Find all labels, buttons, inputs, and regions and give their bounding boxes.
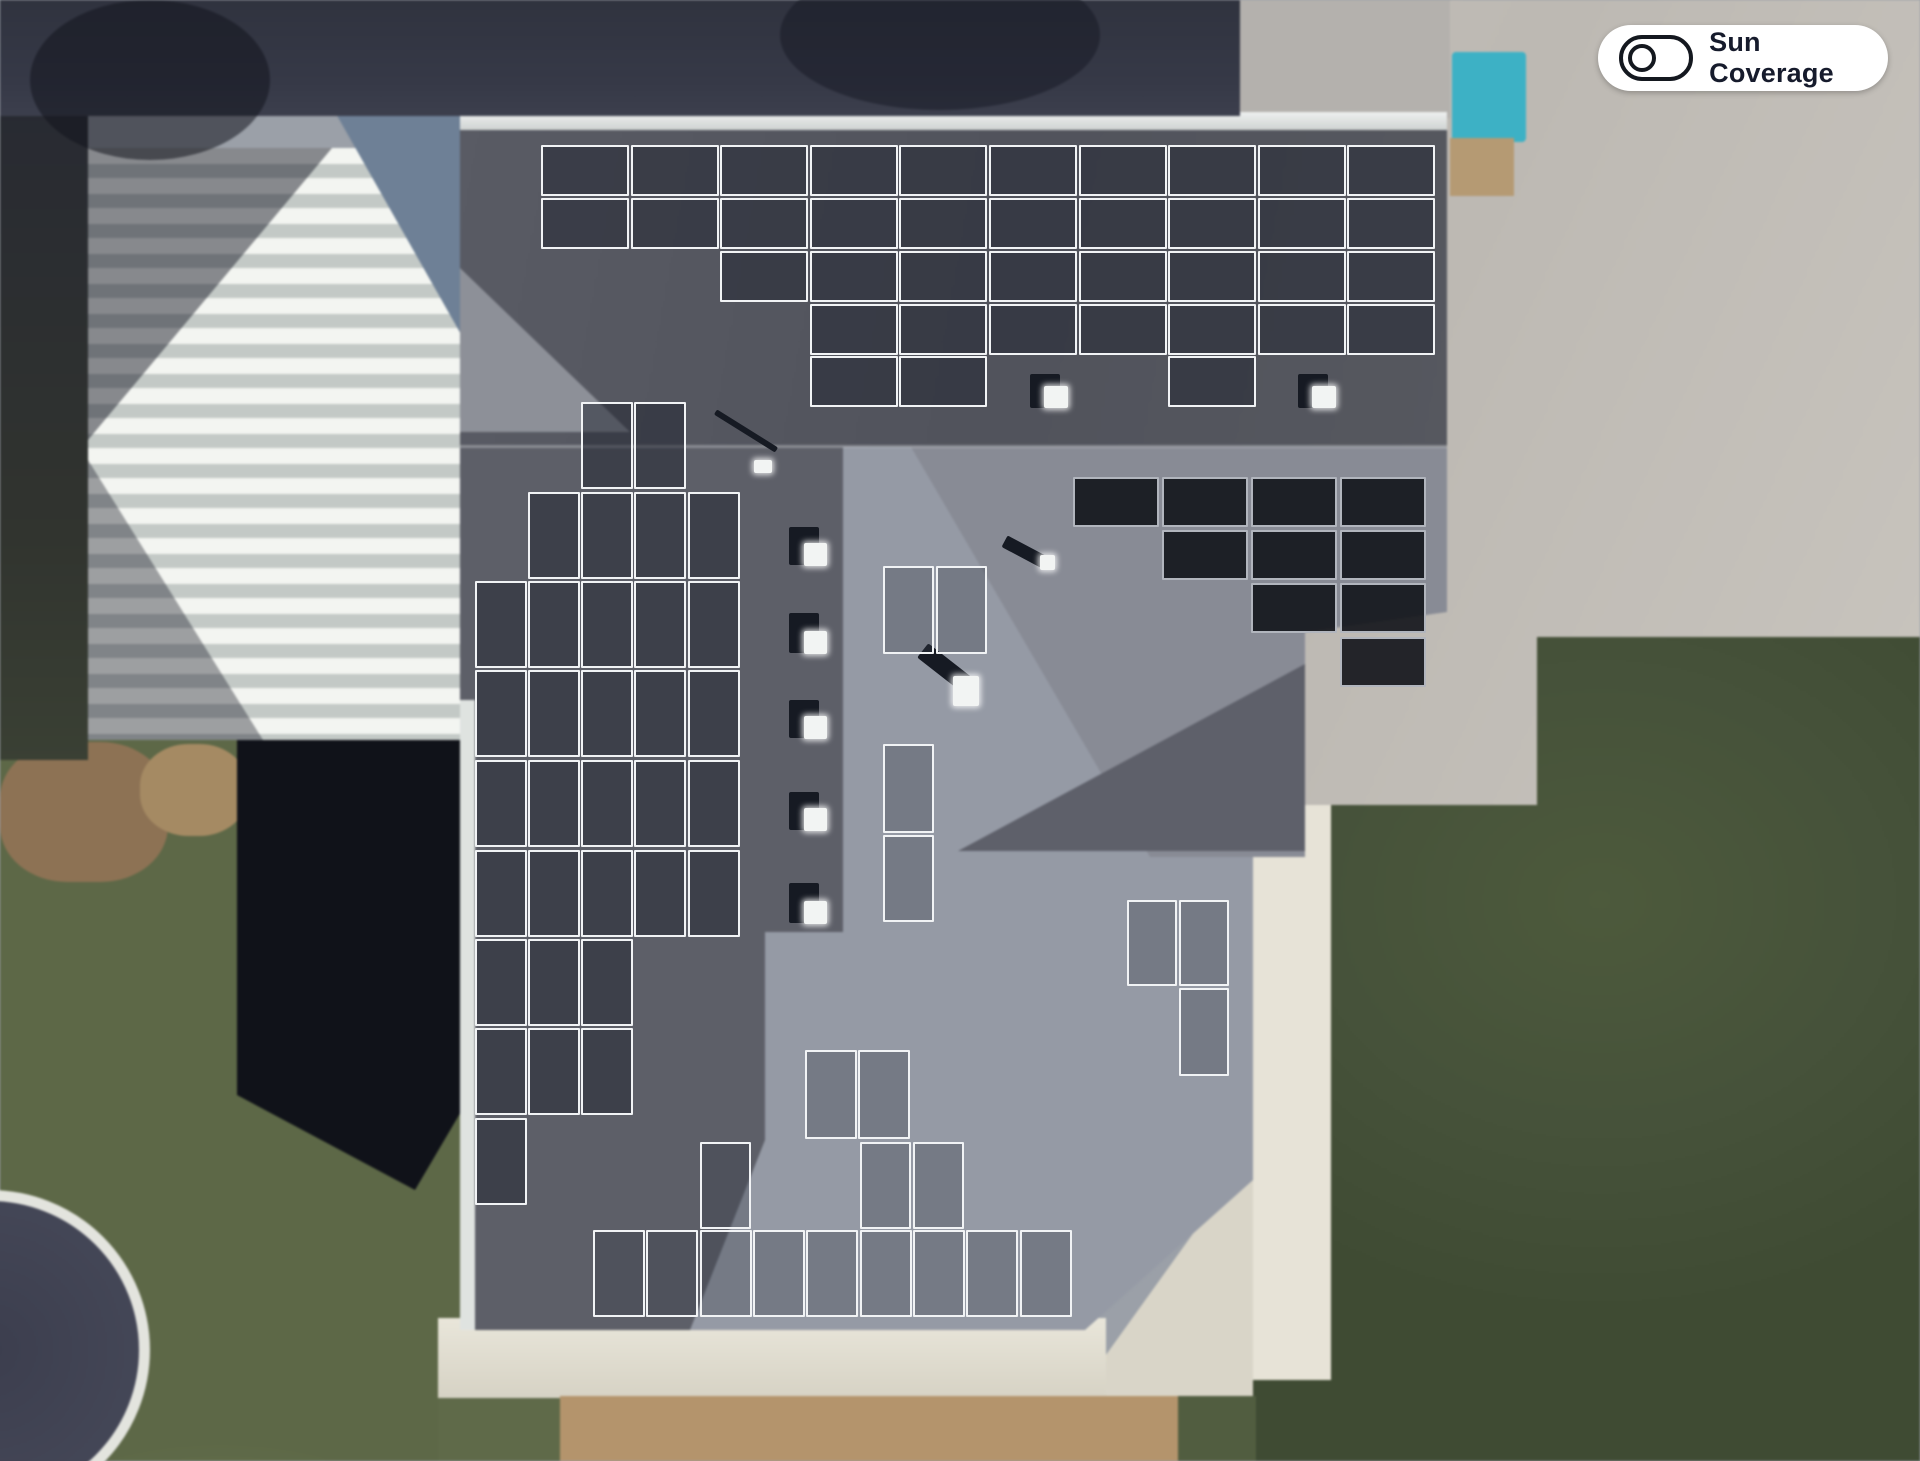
solar-panel[interactable] [860, 1230, 912, 1317]
solar-panel[interactable] [1162, 477, 1248, 527]
solar-panel[interactable] [528, 670, 580, 757]
solar-panel[interactable] [631, 145, 719, 196]
solar-panel[interactable] [631, 198, 719, 249]
solar-panel[interactable] [688, 492, 740, 579]
solar-panel[interactable] [581, 850, 633, 937]
tree-shadow-blob [30, 0, 270, 160]
dirt-path-bottom [560, 1396, 1182, 1461]
solar-panel[interactable] [989, 198, 1077, 249]
solar-panel[interactable] [1340, 477, 1426, 527]
roof-vent-highlight [1312, 386, 1336, 408]
solar-panel[interactable] [475, 850, 527, 937]
solar-panel[interactable] [700, 1142, 751, 1229]
solar-panel[interactable] [1340, 530, 1426, 580]
toggle-knob-icon [1628, 44, 1656, 72]
solar-panel[interactable] [688, 850, 740, 937]
solar-panel[interactable] [810, 304, 898, 355]
solar-panel[interactable] [1347, 145, 1435, 196]
solar-panel[interactable] [528, 492, 580, 579]
solar-panel[interactable] [634, 492, 686, 579]
solar-panel[interactable] [989, 251, 1077, 302]
solar-panel[interactable] [700, 1230, 752, 1317]
solar-panel[interactable] [989, 145, 1077, 196]
solar-panel[interactable] [581, 1028, 633, 1115]
solar-panel[interactable] [966, 1230, 1018, 1317]
solar-panel[interactable] [634, 670, 686, 757]
solar-panel[interactable] [528, 760, 580, 847]
solar-panel[interactable] [634, 581, 686, 668]
roof-gutter-left [460, 700, 475, 1330]
solar-panel[interactable] [1251, 530, 1337, 580]
solar-panel[interactable] [1079, 198, 1167, 249]
sun-coverage-label: Sun Coverage [1709, 27, 1888, 89]
roof-vent-highlight [804, 716, 827, 739]
solar-panel[interactable] [720, 145, 808, 196]
pool-water-patch [1452, 52, 1526, 142]
solar-panel[interactable] [1168, 304, 1256, 355]
solar-panel[interactable] [860, 1142, 911, 1229]
solar-panel[interactable] [805, 1050, 857, 1139]
solar-panel[interactable] [634, 402, 686, 489]
solar-panel[interactable] [581, 581, 633, 668]
solar-panel[interactable] [1258, 145, 1346, 196]
solar-panel[interactable] [1079, 145, 1167, 196]
solar-panel[interactable] [1251, 477, 1337, 527]
roof-vent-highlight [804, 808, 827, 831]
solar-panel[interactable] [899, 145, 987, 196]
solar-panel[interactable] [1347, 304, 1435, 355]
solar-panel[interactable] [810, 198, 898, 249]
dirt-patch-left [140, 744, 248, 836]
solar-panel[interactable] [1020, 1230, 1072, 1317]
sun-coverage-toggle[interactable]: Sun Coverage [1598, 25, 1888, 91]
solar-panel[interactable] [688, 581, 740, 668]
solar-panel[interactable] [475, 581, 527, 668]
solar-panel[interactable] [634, 760, 686, 847]
solar-panel[interactable] [1168, 251, 1256, 302]
solar-panel[interactable] [541, 145, 629, 196]
concrete-top-strip [1240, 0, 1450, 118]
roof-vent-highlight [804, 543, 827, 566]
solar-panel[interactable] [883, 835, 934, 922]
toggle-switch-icon[interactable] [1619, 35, 1693, 81]
solar-panel[interactable] [1347, 251, 1435, 302]
solar-panel[interactable] [528, 581, 580, 668]
solar-panel[interactable] [1079, 304, 1167, 355]
roof-vent-highlight [754, 460, 772, 473]
roof-vent-highlight [953, 676, 979, 706]
solar-panel[interactable] [688, 670, 740, 757]
solar-panel[interactable] [581, 760, 633, 847]
walkway-right [1253, 805, 1331, 1380]
solar-panel[interactable] [810, 251, 898, 302]
solar-panel[interactable] [475, 670, 527, 757]
aerial-map[interactable]: Sun Coverage [0, 0, 1920, 1461]
roof-vent-highlight [804, 631, 827, 654]
solar-panel[interactable] [1251, 583, 1337, 633]
solar-panel[interactable] [1168, 198, 1256, 249]
solar-panel[interactable] [475, 760, 527, 847]
solar-panel[interactable] [989, 304, 1077, 355]
solar-panel[interactable] [1162, 530, 1248, 580]
solar-panel[interactable] [528, 1028, 580, 1115]
solar-panel[interactable] [1258, 198, 1346, 249]
solar-panel[interactable] [581, 402, 633, 489]
solar-panel[interactable] [883, 566, 934, 654]
solar-panel[interactable] [475, 1028, 527, 1115]
solar-panel[interactable] [810, 356, 898, 407]
solar-panel[interactable] [1340, 637, 1426, 687]
solar-panel[interactable] [646, 1230, 698, 1317]
solar-panel[interactable] [806, 1230, 858, 1317]
solar-panel[interactable] [899, 198, 987, 249]
solar-panel[interactable] [1258, 251, 1346, 302]
dirt-left [0, 742, 168, 882]
solar-panel[interactable] [899, 251, 987, 302]
solar-panel[interactable] [541, 198, 629, 249]
solar-panel[interactable] [634, 850, 686, 937]
solar-panel[interactable] [753, 1230, 805, 1317]
solar-panel[interactable] [1347, 198, 1435, 249]
solar-panel[interactable] [913, 1142, 964, 1229]
solar-panel[interactable] [581, 492, 633, 579]
solar-panel[interactable] [1179, 900, 1229, 986]
solar-panel[interactable] [1179, 988, 1229, 1076]
solar-panel[interactable] [1079, 251, 1167, 302]
solar-panel[interactable] [1073, 477, 1159, 527]
solar-panel[interactable] [883, 744, 934, 833]
solar-panel[interactable] [1168, 356, 1256, 407]
grass-bottom-right [1178, 1396, 1256, 1461]
solar-panel[interactable] [688, 760, 740, 847]
solar-panel[interactable] [899, 304, 987, 355]
solar-panel[interactable] [899, 356, 987, 407]
roof-vent-highlight [1040, 555, 1055, 570]
solar-panel[interactable] [1258, 304, 1346, 355]
roof-vent-highlight [804, 901, 827, 924]
solar-panel[interactable] [475, 939, 527, 1026]
solar-panel[interactable] [936, 566, 987, 654]
solar-panel[interactable] [913, 1230, 965, 1317]
walkway-bottom [438, 1318, 1106, 1404]
solar-panel[interactable] [475, 1118, 527, 1205]
solar-panel[interactable] [1340, 583, 1426, 633]
solar-panel[interactable] [593, 1230, 645, 1317]
solar-panel[interactable] [858, 1050, 910, 1139]
solar-panel[interactable] [720, 198, 808, 249]
solar-panel[interactable] [810, 145, 898, 196]
solar-panel[interactable] [581, 939, 633, 1026]
solar-panel[interactable] [720, 251, 808, 302]
solar-panel[interactable] [581, 670, 633, 757]
dirt-patch-top-right [1450, 138, 1514, 196]
roof-vent-highlight [1044, 386, 1068, 408]
solar-panel[interactable] [1127, 900, 1177, 986]
solar-panel[interactable] [528, 850, 580, 937]
solar-panel[interactable] [528, 939, 580, 1026]
solar-panel[interactable] [1168, 145, 1256, 196]
